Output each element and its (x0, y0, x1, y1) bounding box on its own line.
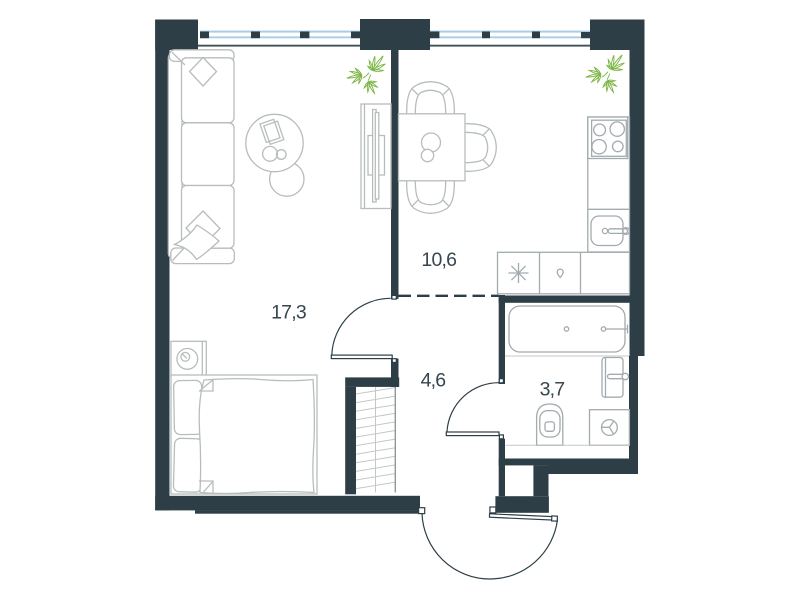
svg-text:10,6: 10,6 (421, 249, 456, 271)
svg-text:3,7: 3,7 (540, 378, 565, 400)
svg-text:17,3: 17,3 (271, 301, 306, 323)
svg-text:4,6: 4,6 (421, 370, 446, 392)
